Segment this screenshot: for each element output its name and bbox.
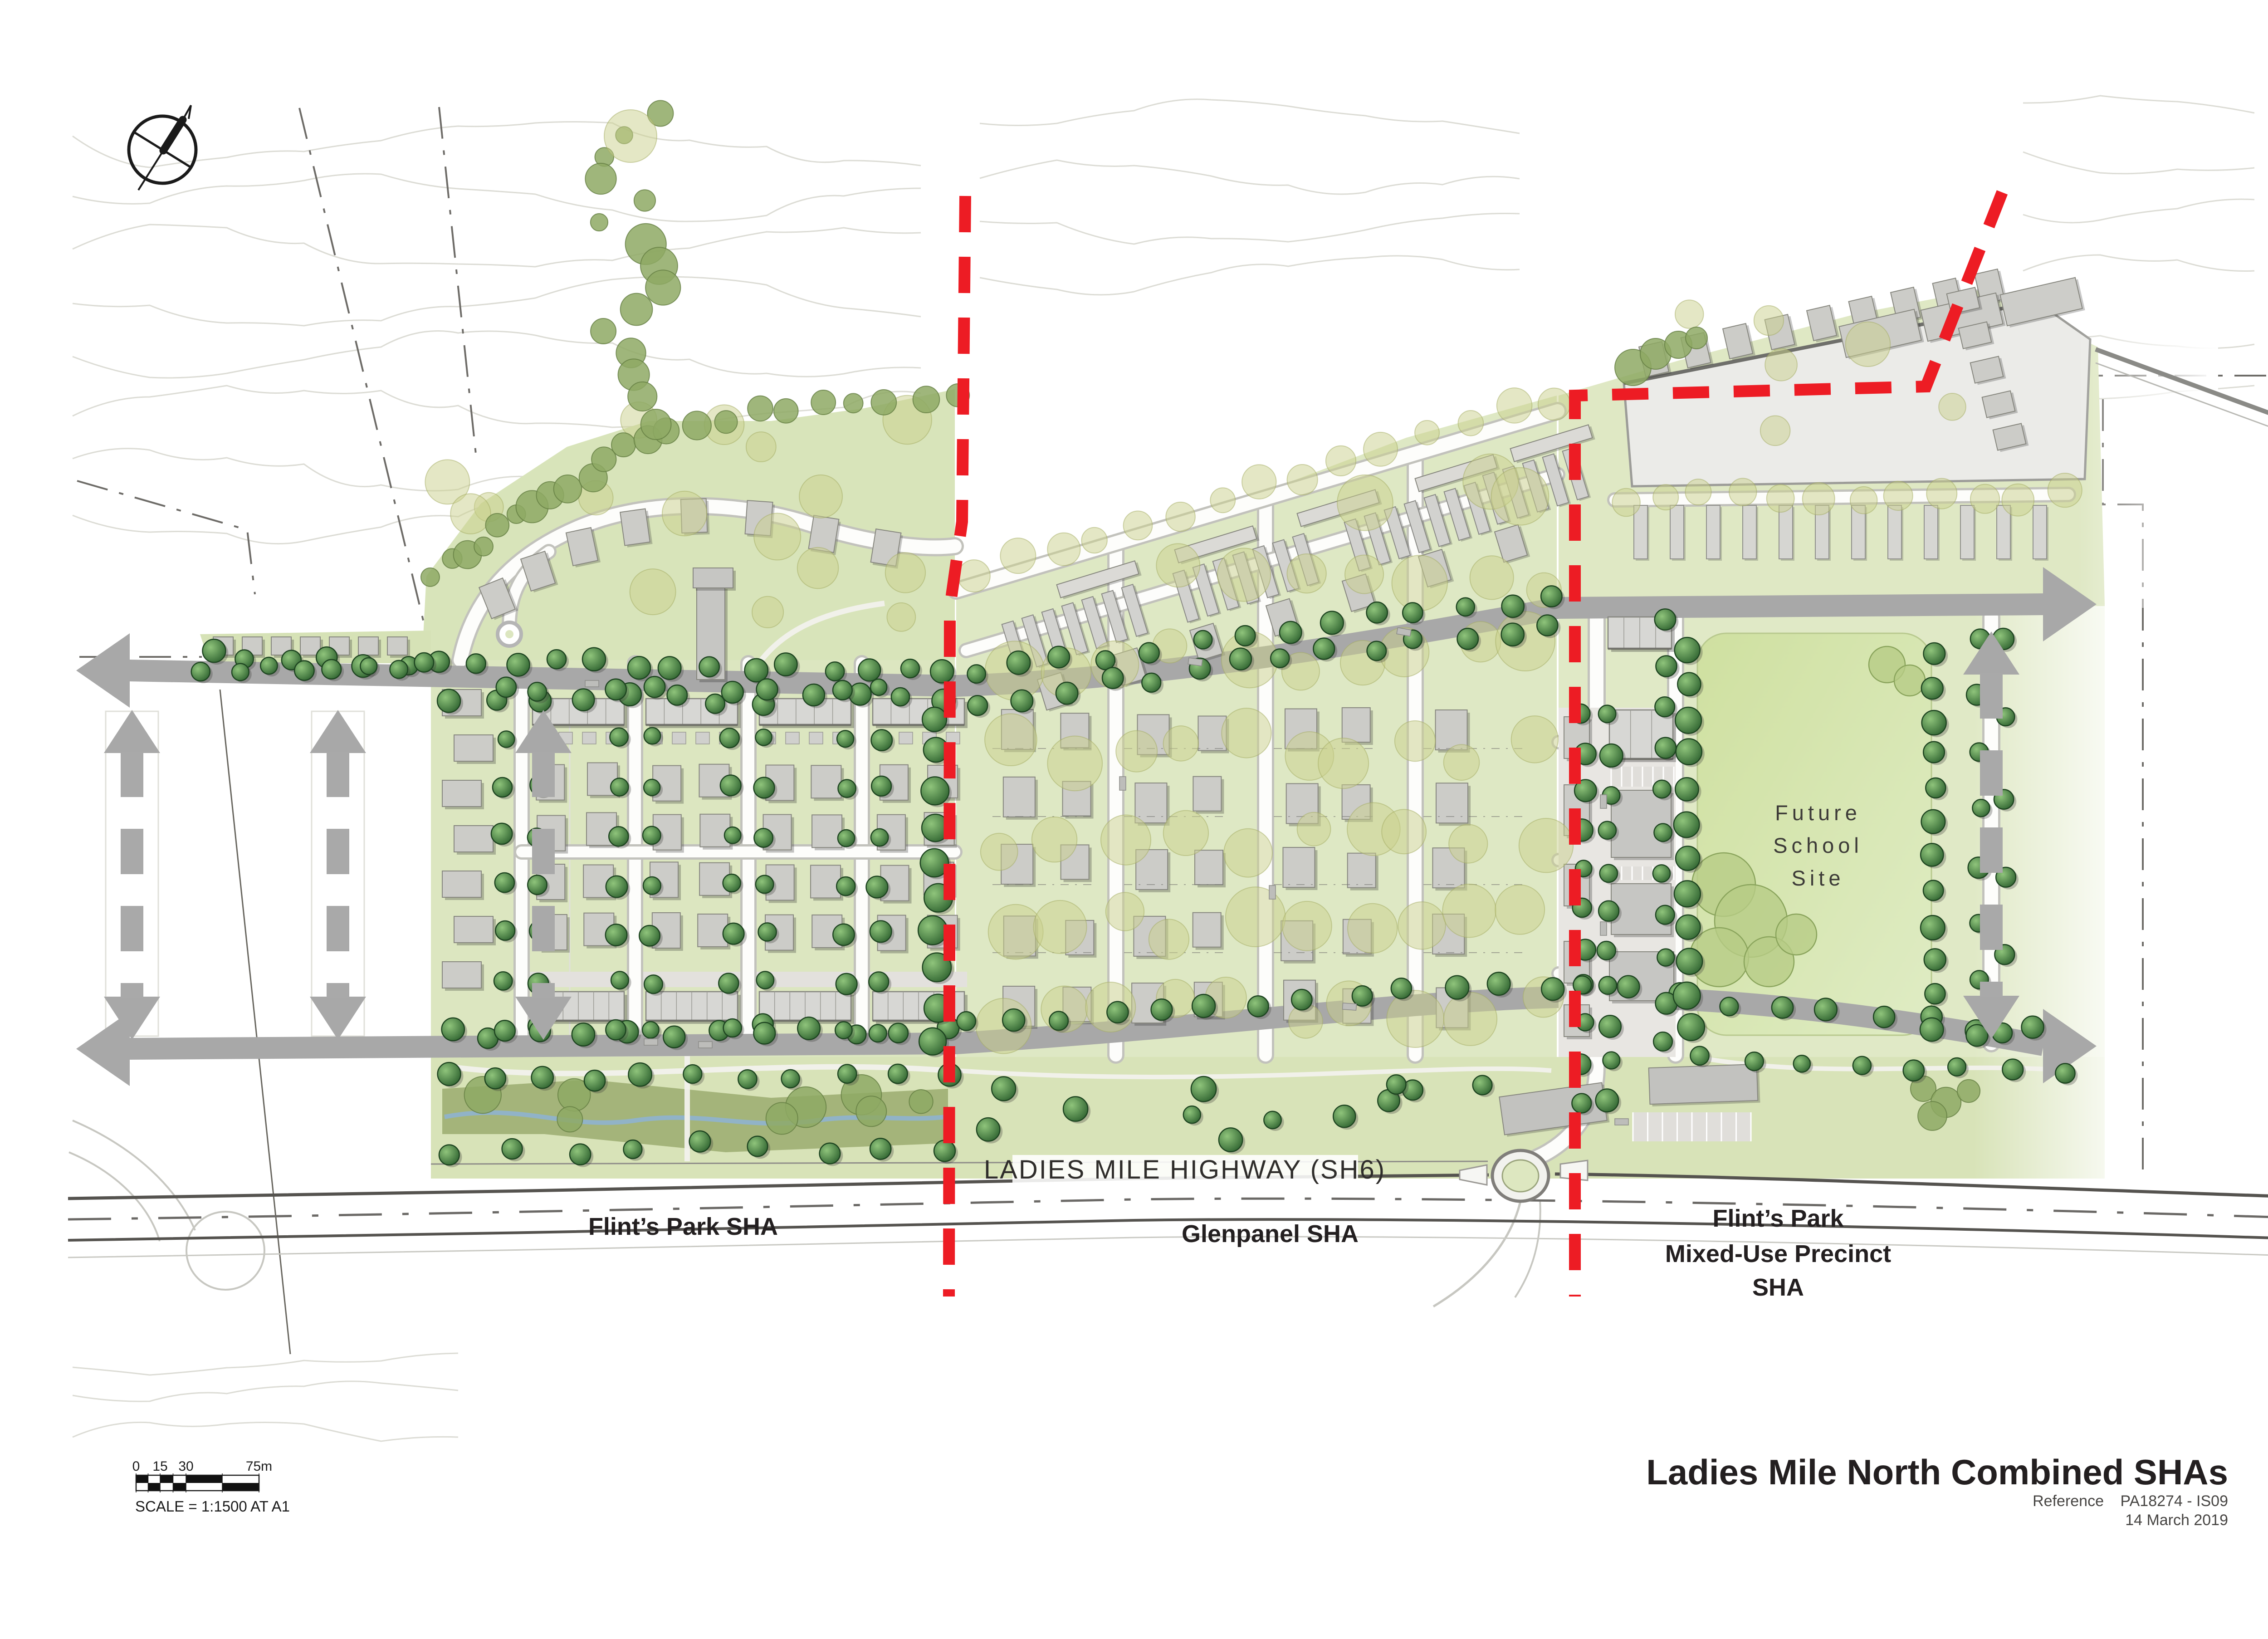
scale-note: SCALE = 1:1500 AT A1 [135,1498,290,1515]
drawing-title: Ladies Mile North Combined SHAs [1646,1452,2228,1492]
zone-label-flints-park: Flint’s Park SHA [588,1213,778,1240]
zone-label-mixed-use-line3: SHA [1752,1274,1804,1301]
title-block: Ladies Mile North Combined SHAs Referenc… [1646,1452,2228,1529]
zone-label-glenpanel: Glenpanel SHA [1182,1220,1359,1248]
plan-graphics-layer [68,96,2268,1441]
site-plan-page: LADIES MILE HIGHWAY (SH6) Flint’s Park S… [0,0,2268,1639]
highway-label: LADIES MILE HIGHWAY (SH6) [984,1155,1386,1184]
school-site-label-line3: Site [1792,866,1845,890]
reference-label: Reference [2033,1492,2104,1510]
site-plan-canvas: LADIES MILE HIGHWAY (SH6) Flint’s Park S… [0,0,2268,1639]
scale-bar-segments [136,1473,259,1492]
scale-tick-30: 30 [178,1459,193,1474]
north-compass-icon [129,105,196,190]
zone-label-mixed-use-line1: Flint’s Park [1712,1205,1844,1232]
scale-bar: 0 15 30 75m SCALE = 1:1500 AT A1 [132,1459,290,1515]
drawing-date: 14 March 2019 [2125,1512,2228,1529]
reference-value: PA18274 - IS09 [2120,1492,2228,1510]
zone-label-mixed-use-line2: Mixed-Use Precinct [1665,1240,1891,1267]
scale-tick-75m: 75m [246,1459,272,1474]
school-site-label-line2: School [1773,833,1863,857]
scale-tick-0: 0 [132,1459,140,1474]
school-site-label-line1: Future [1775,801,1861,825]
scale-tick-15: 15 [152,1459,167,1474]
